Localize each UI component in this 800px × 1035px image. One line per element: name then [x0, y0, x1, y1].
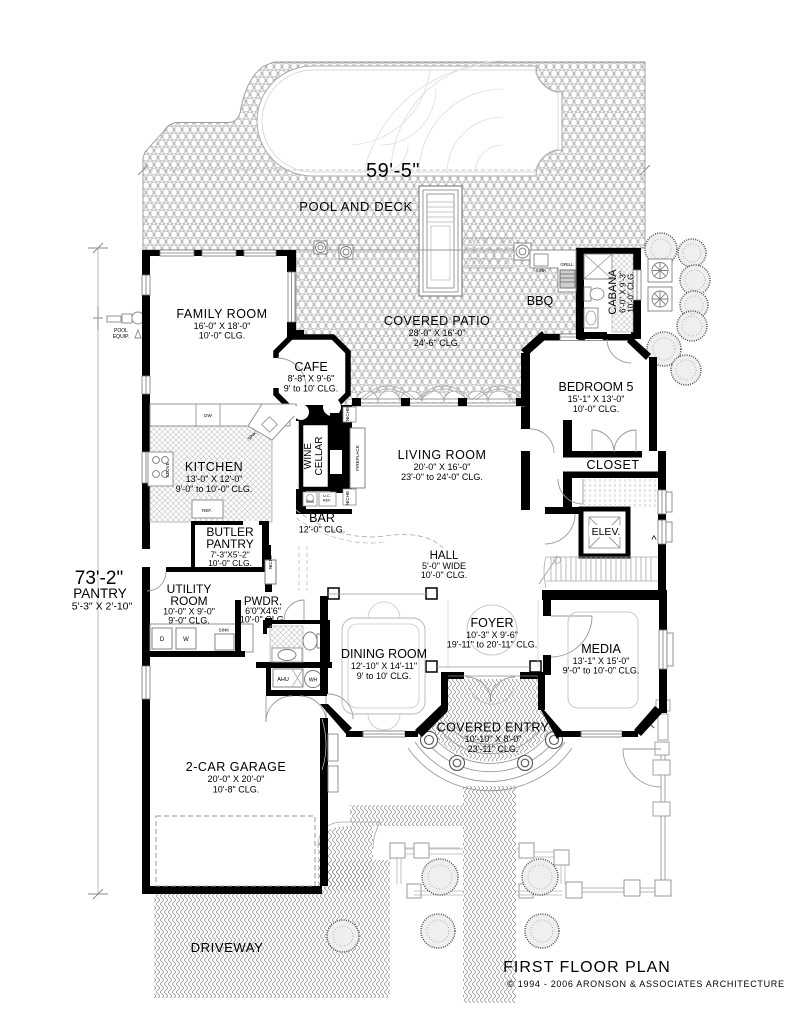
- svg-text:CAFE: CAFE: [294, 360, 327, 374]
- svg-text:8'-8" X 9'-6": 8'-8" X 9'-6": [288, 374, 335, 384]
- svg-text:WH: WH: [309, 678, 318, 684]
- svg-text:CLOSET: CLOSET: [586, 458, 639, 472]
- svg-text:BEDROOM 5: BEDROOM 5: [558, 380, 633, 394]
- svg-text:FIRST FLOOR PLAN: FIRST FLOOR PLAN: [503, 959, 671, 976]
- svg-text:U.C.: U.C.: [323, 494, 331, 498]
- svg-text:16'-0" X 18'-0": 16'-0" X 18'-0": [194, 321, 251, 331]
- svg-text:PANTRY: PANTRY: [73, 586, 127, 601]
- svg-text:POOL AND DECK: POOL AND DECK: [299, 199, 413, 214]
- svg-text:9'-0" CLG.: 9'-0" CLG.: [168, 616, 209, 626]
- svg-text:COVERED ENTRY: COVERED ENTRY: [437, 721, 550, 735]
- svg-text:23'-11" CLG.: 23'-11" CLG.: [468, 744, 519, 754]
- svg-text:CELLAR: CELLAR: [314, 437, 325, 476]
- svg-text:REF.: REF.: [323, 499, 331, 503]
- svg-text:2-CAR GARAGE: 2-CAR GARAGE: [186, 760, 286, 774]
- svg-text:10'-8" CLG.: 10'-8" CLG.: [213, 785, 259, 795]
- svg-text:10'-0" CLG.: 10'-0" CLG.: [199, 331, 245, 341]
- svg-text:59'-5": 59'-5": [366, 160, 420, 182]
- svg-text:LIVING ROOM: LIVING ROOM: [398, 448, 487, 462]
- svg-text:EQUIP.: EQUIP.: [113, 334, 129, 340]
- svg-text:10'-0" CLG.: 10'-0" CLG.: [627, 271, 636, 312]
- svg-text:15'-1" X 13'-0": 15'-1" X 13'-0": [568, 394, 625, 404]
- svg-text:^: ^: [651, 534, 657, 546]
- svg-text:NICHE: NICHE: [268, 555, 273, 569]
- svg-text:DINING ROOM: DINING ROOM: [341, 647, 427, 661]
- svg-text:23'-0" to 24'-0" CLG.: 23'-0" to 24'-0" CLG.: [401, 472, 483, 482]
- svg-text:AHU: AHU: [277, 677, 289, 683]
- svg-text:13'-1" X 15'-0": 13'-1" X 15'-0": [573, 656, 630, 666]
- svg-text:9'-0" to 10'-0" CLG.: 9'-0" to 10'-0" CLG.: [563, 666, 640, 676]
- svg-text:REF.: REF.: [202, 508, 212, 513]
- svg-text:10'-0" CLG.: 10'-0" CLG.: [573, 404, 619, 414]
- svg-text:W: W: [183, 637, 189, 643]
- svg-text:D: D: [160, 637, 165, 643]
- svg-text:10'-10" X 8'-0": 10'-10" X 8'-0": [465, 734, 522, 744]
- svg-text:10'-0" CLG.: 10'-0" CLG.: [240, 615, 286, 625]
- svg-text:DW: DW: [204, 413, 212, 418]
- svg-text:13'-0" X 12'-0": 13'-0" X 12'-0": [186, 474, 243, 484]
- svg-text:FOYER: FOYER: [470, 616, 513, 630]
- svg-text:9' to 10' CLG.: 9' to 10' CLG.: [284, 384, 338, 394]
- svg-text:10'-3" X 9'-6": 10'-3" X 9'-6": [466, 630, 518, 640]
- svg-text:BAR: BAR: [309, 511, 335, 525]
- svg-text:COVERED PATIO: COVERED PATIO: [384, 314, 490, 328]
- svg-text:NICHE: NICHE: [345, 491, 350, 505]
- svg-text:20'-0" X 20'-0": 20'-0" X 20'-0": [208, 774, 265, 784]
- svg-text:KITCHEN: KITCHEN: [185, 460, 243, 474]
- svg-text:9' to 10' CLG.: 9' to 10' CLG.: [357, 671, 411, 681]
- svg-text:STOVE: STOVE: [165, 462, 170, 478]
- svg-text:SINK: SINK: [306, 500, 315, 504]
- svg-text:28'-0" X 16'-0": 28'-0" X 16'-0": [409, 328, 466, 338]
- svg-text:19'-11" to 20'-11" CLG.: 19'-11" to 20'-11" CLG.: [447, 640, 538, 650]
- svg-text:5'-3" X 2'-10": 5'-3" X 2'-10": [72, 601, 133, 613]
- svg-text:WINE: WINE: [303, 443, 314, 469]
- svg-text:SINK: SINK: [219, 628, 231, 633]
- svg-text:BBQ: BBQ: [527, 294, 554, 308]
- svg-text:MEDIA: MEDIA: [581, 642, 621, 656]
- svg-text:12'-0" CLG.: 12'-0" CLG.: [299, 525, 345, 535]
- svg-text:CABANA: CABANA: [607, 269, 619, 315]
- svg-text:DRIVEWAY: DRIVEWAY: [191, 940, 264, 955]
- svg-text:GRILL: GRILL: [560, 262, 574, 267]
- svg-text:ELEV.: ELEV.: [592, 526, 621, 538]
- svg-text:© 1994 - 2006 ARONSON & ASSOCI: © 1994 - 2006 ARONSON & ASSOCIATES ARCHI…: [507, 979, 784, 989]
- svg-text:SINK: SINK: [536, 268, 548, 273]
- svg-text:FIREPLACE: FIREPLACE: [355, 445, 360, 471]
- svg-text:9'-0" to 10'-0" CLG.: 9'-0" to 10'-0" CLG.: [176, 484, 253, 494]
- svg-text:24'-6" CLG.: 24'-6" CLG.: [414, 338, 460, 348]
- svg-text:FAMILY ROOM: FAMILY ROOM: [176, 307, 267, 321]
- svg-text:12'-10" X 14'-11": 12'-10" X 14'-11": [351, 661, 417, 671]
- svg-text:NICHE: NICHE: [345, 407, 350, 421]
- svg-text:10'-0" CLG.: 10'-0" CLG.: [421, 570, 467, 580]
- svg-text:20'-0" X 16'-0": 20'-0" X 16'-0": [414, 462, 471, 472]
- svg-text:10'-0" CLG.: 10'-0" CLG.: [208, 558, 252, 568]
